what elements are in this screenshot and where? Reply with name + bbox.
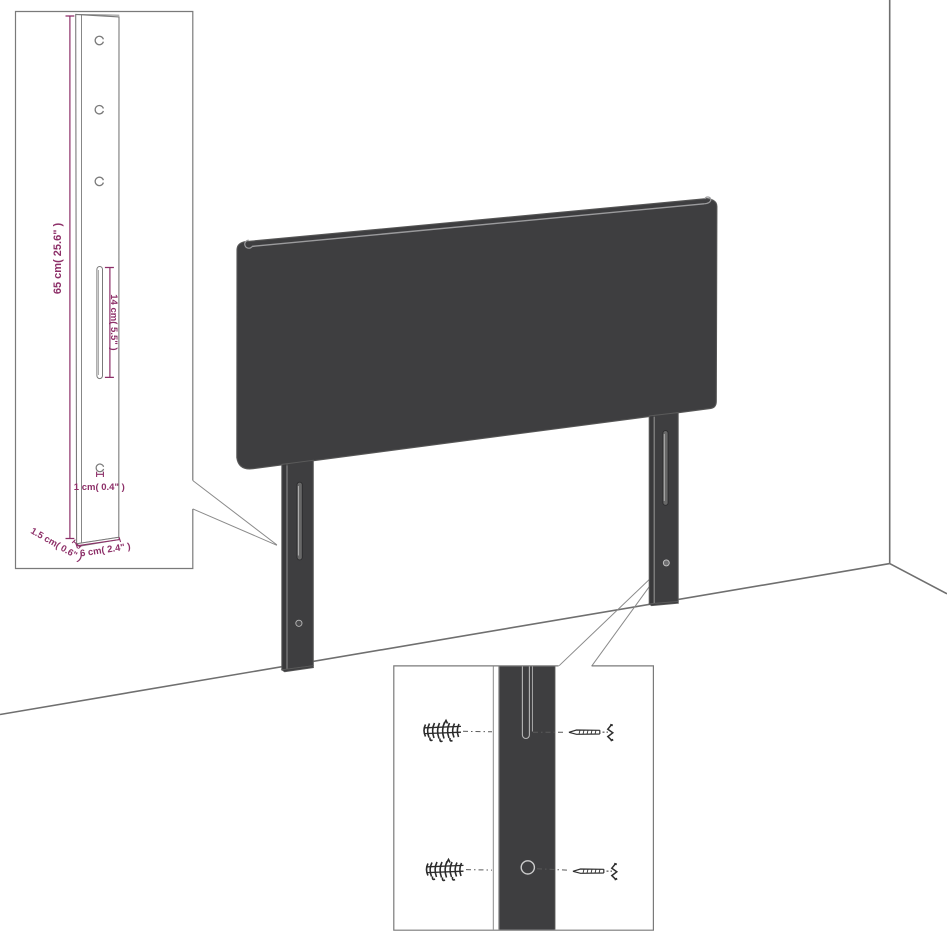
svg-text:14 cm( 5.5" ): 14 cm( 5.5" ) [108, 294, 119, 350]
svg-text:1 cm( 0.4" ): 1 cm( 0.4" ) [74, 482, 125, 493]
svg-text:65 cm( 25.6" ): 65 cm( 25.6" ) [52, 223, 64, 295]
